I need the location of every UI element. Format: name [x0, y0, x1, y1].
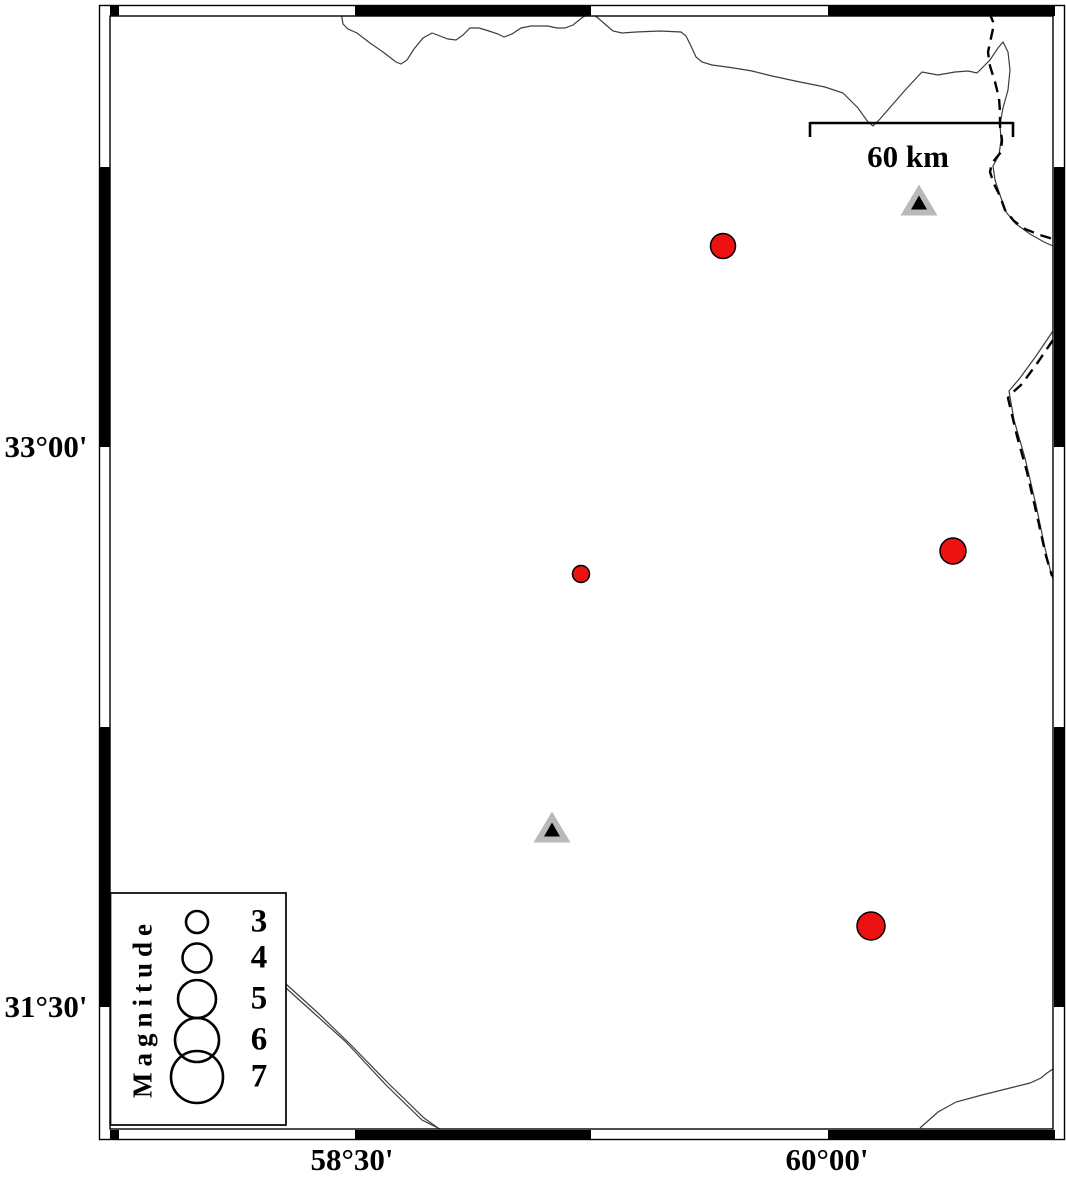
earthquake-marker: [711, 234, 736, 259]
marker-layer: [534, 185, 967, 941]
scale-bar: [810, 122, 1013, 137]
legend-magnitude-label-3: 3: [251, 904, 268, 941]
map-canvas: [0, 0, 1066, 1177]
legend-magnitude-label-5: 5: [251, 981, 268, 1018]
coastline-path: [341, 12, 1053, 246]
river-path-bottom-left-a: [262, 962, 438, 1128]
river-path-right: [1009, 331, 1053, 579]
legend-title: Magnitude: [128, 918, 159, 1098]
legend-magnitude-label-6: 6: [251, 1022, 268, 1059]
map-figure: 33°00' 31°30' 58°30' 60°00' 60 km Magnit…: [0, 0, 1066, 1177]
x-axis-label-60-00: 60°00': [785, 1142, 868, 1177]
earthquake-marker: [573, 566, 590, 583]
station-marker: [534, 812, 571, 843]
river-path-bottom-right: [920, 1069, 1053, 1128]
border-dashed-path-upper: [988, 12, 1053, 239]
legend-magnitude-label-7: 7: [251, 1059, 268, 1096]
y-axis-label-31-30: 31°30': [4, 989, 87, 1025]
border-dashed-path-right: [1008, 340, 1053, 576]
x-axis-label-58-30: 58°30': [310, 1142, 393, 1177]
y-axis-label-33-00: 33°00': [4, 429, 87, 465]
river-path-bottom-left-b: [262, 965, 440, 1129]
geography-layer: [262, 12, 1053, 1129]
scale-bar-label: 60 km: [867, 139, 949, 175]
legend-magnitude-label-4: 4: [251, 940, 268, 977]
earthquake-marker: [940, 538, 966, 564]
station-marker: [901, 185, 938, 216]
earthquake-marker: [857, 912, 885, 940]
